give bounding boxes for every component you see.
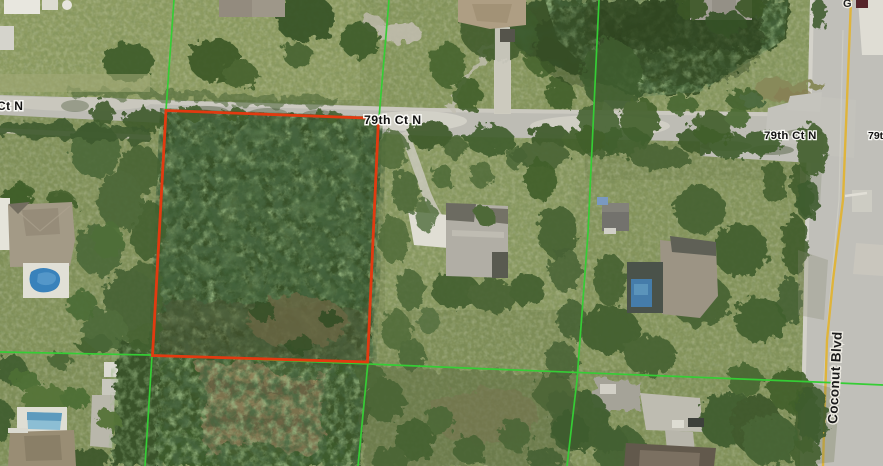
svg-text:79th Ct N: 79th Ct N <box>764 130 817 142</box>
svg-text:79t: 79t <box>868 130 883 142</box>
svg-text:G: G <box>843 0 852 10</box>
svg-text:79th Ct N: 79th Ct N <box>364 113 422 127</box>
svg-text:Ct N: Ct N <box>0 99 23 113</box>
